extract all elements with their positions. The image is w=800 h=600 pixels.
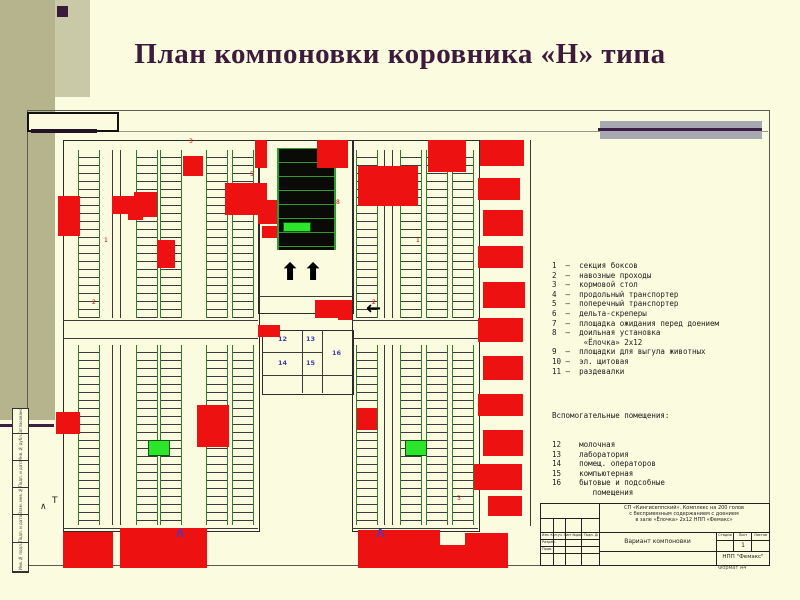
line (63, 338, 258, 339)
red-block (258, 325, 280, 337)
red-block (478, 318, 523, 342)
red-block (255, 140, 267, 168)
red-block (428, 140, 466, 172)
legend-line: 3 – кормовой стол (552, 280, 719, 290)
ladder (78, 345, 100, 525)
label-blue: 12 (278, 336, 287, 343)
ladder (232, 345, 254, 525)
line (352, 320, 478, 321)
stamp-organization: НПП "Фемакс" (717, 551, 769, 564)
label-red: 8 (336, 200, 340, 206)
legend-line: 2 – навозные проходы (552, 271, 719, 281)
legend-line: 9 – площадки для выгула животных (552, 347, 719, 357)
line (530, 140, 531, 526)
label-red: 3 (457, 496, 461, 502)
red-block (262, 226, 277, 238)
red-block (478, 246, 523, 268)
green-block (283, 222, 311, 232)
legend-line: 14 помещ. операторов (552, 459, 669, 469)
label-blue: 13 (306, 336, 315, 343)
label-red: 5 (250, 172, 254, 178)
legend-line: помещения (552, 488, 669, 498)
red-block (478, 178, 520, 200)
line (63, 320, 258, 321)
aux-items: 12 молочная13 лаборатория14 помещ. опера… (552, 440, 669, 498)
line (120, 150, 121, 318)
ladder (356, 345, 378, 525)
legend-line: 16 бытовые и подсобные (552, 478, 669, 488)
red-block (317, 140, 348, 168)
legend-line: 4 – продольный транспортер (552, 290, 719, 300)
line (262, 352, 322, 353)
stamp-project-description: СП «Кингисеппский». Комплекс на 200 голо… (601, 505, 767, 531)
red-block (465, 533, 508, 568)
stamp-col-sheets: Листов (752, 533, 769, 537)
line (352, 338, 478, 339)
line (352, 528, 478, 529)
red-block (134, 192, 157, 217)
label-red: 2 (372, 300, 376, 306)
mark: Λ (176, 528, 185, 539)
ladder (160, 150, 182, 318)
ladder (426, 345, 448, 525)
line (112, 150, 113, 318)
green-block (148, 440, 170, 456)
legend-line: 5 – поперечный транспортер (552, 299, 719, 309)
label-red: 3 (189, 139, 193, 145)
legend-line: 1 – секция боксов (552, 261, 719, 271)
red-block (258, 200, 277, 224)
label-blue: 15 (306, 360, 315, 367)
ladder (78, 150, 100, 318)
line (322, 330, 323, 393)
title-block-stamp: СП «Кингисеппский». Комплекс на 200 голо… (540, 503, 770, 566)
legend-line: 8 – доильная установка (552, 328, 719, 338)
red-block (440, 545, 465, 568)
legend-line: 6 – дельта-скреперы (552, 309, 719, 319)
ladder (136, 150, 158, 318)
line (392, 345, 393, 525)
line (258, 296, 352, 297)
mark: Λ (376, 528, 385, 539)
aux-rooms-list: Вспомогательные помещения: 12 молочная13… (552, 392, 669, 507)
red-block (120, 528, 207, 568)
legend-line: 13 лаборатория (552, 450, 669, 460)
label-red: 1 (104, 238, 108, 244)
stamp-project-line: в зале «Ёлочка» 2х12 НПП «Фемакс» (601, 517, 767, 523)
ladder (160, 345, 182, 525)
red-block (315, 300, 338, 318)
red-block (358, 166, 418, 206)
aux-header: Вспомогательные помещения: (552, 411, 669, 421)
stamp-doc-title: Вариант компоновки (599, 532, 716, 551)
smark: Т (52, 497, 58, 506)
ladder (400, 345, 422, 525)
ladder (452, 150, 474, 318)
stamp-role-checked: Пров. (542, 547, 552, 551)
red-block (197, 405, 229, 447)
legend-line: 15 компьютерная (552, 469, 669, 479)
red-block (488, 496, 522, 516)
ladder (136, 345, 158, 525)
legend-list: 1 – секция боксов2 – навозные проходы3 –… (552, 261, 719, 376)
legend-line: 7 – площадка ожидания перед доением (552, 319, 719, 329)
red-block (357, 408, 377, 430)
up-arrow: ⬆ (303, 260, 323, 284)
stamp-hline (541, 518, 599, 519)
line (120, 345, 121, 525)
legend-line: 10 – эл. щитовая (552, 357, 719, 367)
stamp-role-developed: Разраб. (542, 540, 556, 544)
red-block (183, 156, 203, 176)
red-block (157, 240, 175, 268)
label-blue: 14 (278, 360, 287, 367)
label-red: 2 (92, 300, 96, 306)
red-block (58, 196, 80, 236)
red-block (63, 532, 113, 568)
red-block (56, 412, 80, 434)
red-block (358, 530, 440, 568)
green-block (405, 440, 427, 456)
red-block (483, 210, 523, 236)
legend-line: 12 молочная (552, 440, 669, 450)
line (384, 345, 385, 525)
red-block (480, 140, 524, 166)
red-block (483, 282, 525, 308)
red-block (474, 464, 522, 490)
stamp-hline (541, 553, 599, 554)
stamp-vline (581, 518, 582, 565)
legend-line: «Ёлочка» 2х12 (552, 338, 719, 348)
ladder (452, 345, 474, 525)
stamp-sheet-number: 1 (734, 540, 752, 551)
format-note: Формат А4 (718, 565, 746, 571)
label-red: 1 (416, 238, 420, 244)
red-block (338, 300, 352, 320)
red-block (483, 430, 523, 456)
ladder (426, 150, 448, 318)
stamp-vline (565, 518, 566, 565)
stamp-revision-header: Изм. Кол.уч. Лист №док. Подп. Дата (542, 533, 598, 537)
up-arrow: ⬆ (280, 260, 300, 284)
red-block (483, 356, 523, 380)
label-blue: 16 (332, 350, 341, 357)
line (302, 330, 303, 393)
legend-line: 11 – раздевалки (552, 367, 719, 377)
stamp-col-sheet: Лист (734, 533, 752, 537)
line (112, 345, 113, 525)
line (262, 375, 352, 376)
smark: ∧ (40, 503, 47, 512)
ladder (206, 150, 228, 318)
red-block (478, 394, 523, 416)
stamp-col-stage: Стадия (716, 533, 734, 537)
